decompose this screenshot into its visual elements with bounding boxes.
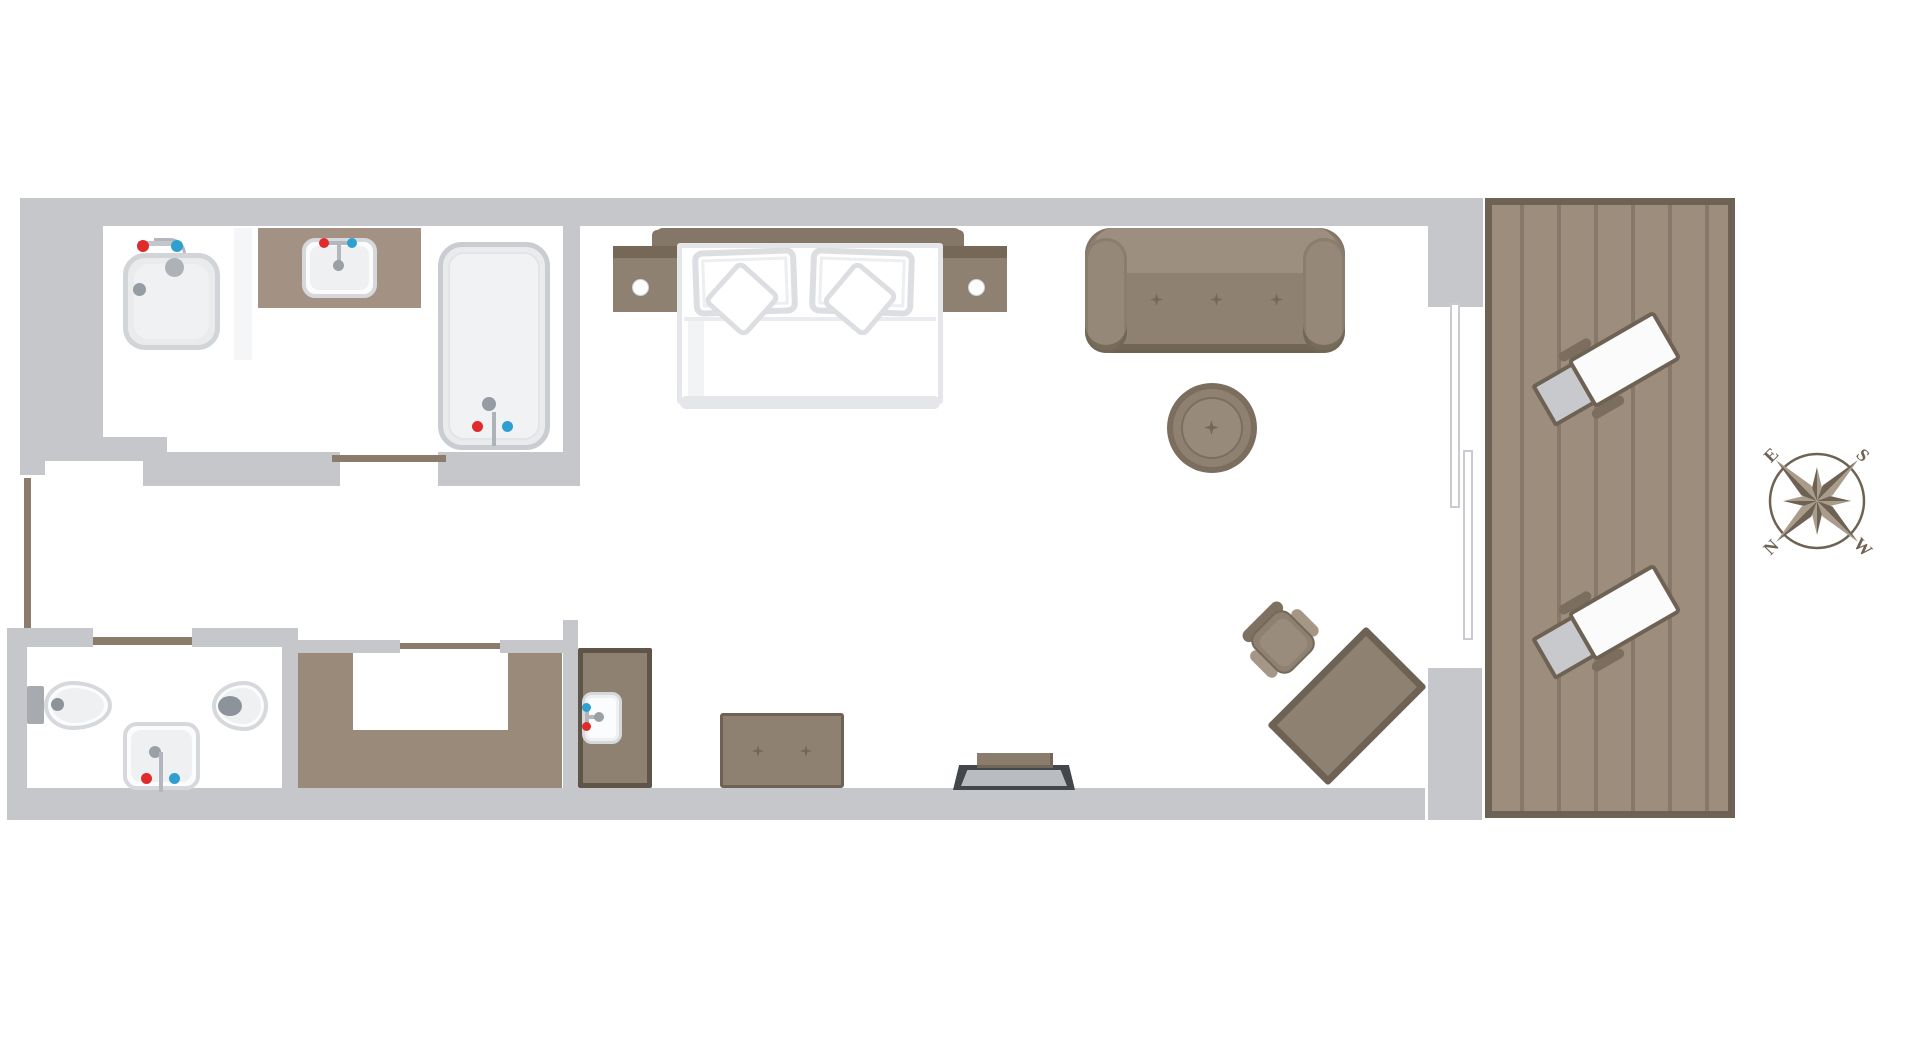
bed-footboard [680,396,940,409]
bathtub-hot-handle [472,421,483,432]
wall-right-block-bottom [1428,668,1482,820]
glass-pane-inner [1450,303,1460,508]
wall-bath-south-b1 [143,452,340,486]
bidet-tank [27,686,44,724]
bathtub-cold-handle [502,421,513,432]
wall-shaft-block [45,226,103,437]
glass-pane-outer [1463,450,1473,640]
luggage-rack-bar [977,753,1053,768]
shower-hot-handle [137,240,149,252]
shower-cold-handle [171,240,183,252]
wardrobe-left-arm [298,653,353,788]
shower-head-icon [165,258,184,277]
wall-divider-upper [563,226,580,486]
wall-right-block-top [1428,198,1483,307]
wardrobe-right-arm [508,653,562,788]
wc-sink-stem [159,752,163,792]
shower-drain [133,283,146,296]
minibar-spout [594,712,604,722]
wall-closet-top-1 [298,640,400,653]
sofa-arm-left [1085,238,1127,353]
sofa-arm-right [1303,238,1345,353]
compass-rose-icon: E S N W [1742,426,1892,576]
sliding-door-bathroom [332,455,446,462]
entry-door [24,478,31,628]
nightstand-right-edge [943,246,1007,258]
toilet-hole [218,696,242,716]
nightstand-left-edge [613,246,677,258]
floorplan-canvas: E S N W [0,0,1920,1047]
wall-top [20,198,1428,226]
wall-wc-east [282,647,298,788]
vanity-hot-handle [319,238,329,248]
minibar-hot-handle [582,722,591,731]
wc-sink-cold [169,773,180,784]
bidet-drain [51,698,64,711]
nightstand-right [943,246,1007,312]
nightstand-left [613,246,677,312]
wall-wc-north-2 [192,628,298,647]
wc-sink-hot [141,773,152,784]
bed-sheet-vertical [688,321,704,397]
wardrobe-sliding-door [400,643,500,649]
wall-left-upper [20,198,45,475]
shower-glass-partition [234,228,252,360]
sofa-backrest [1094,228,1336,273]
wall-bottom [7,788,1425,820]
bathtub-drain [482,397,496,411]
nightstand-left-knob [632,279,649,296]
wall-closet-top-2 [500,640,567,653]
terrace-deck [1485,198,1735,818]
luggage-rack-tray-inner [961,770,1067,786]
bench-ottoman [720,713,844,788]
minibar-cold-handle [582,703,591,712]
wc-door [93,637,192,645]
wall-bath-south-b2 [438,452,580,486]
wardrobe-back [353,730,508,788]
vanity-spout [333,260,344,271]
nightstand-right-knob [968,279,985,296]
bathtub-tap-stem [492,412,496,446]
compass-rose: E S N W [1742,426,1892,576]
vanity-cold-handle [347,238,357,248]
